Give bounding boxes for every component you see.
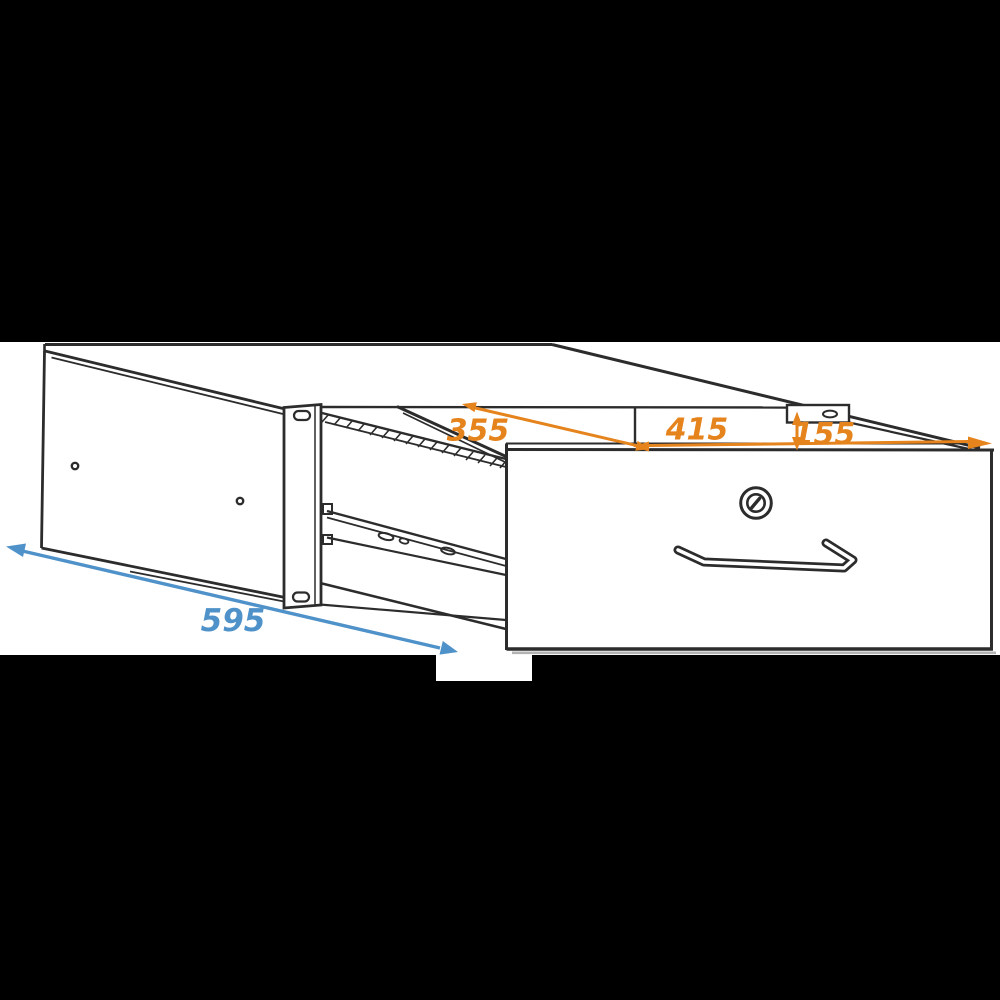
case-inner-top-edge [321,407,788,408]
rail-slot-hole [378,532,394,542]
ear-slot-top [294,411,310,420]
panel-top-edge [45,351,285,409]
dim-595-label: 595 [201,603,266,639]
dim-155-label: 155 [793,417,856,452]
rack-drawer-diagram: 355 415 155 595 [0,0,1000,1000]
rail-upper-inner [327,518,506,567]
panel-hole [237,498,243,504]
letterbox-top [0,0,1000,342]
panel-left-edge [42,351,45,548]
drawer-front-face [508,451,990,649]
rack-ear-left [284,405,321,609]
shadow-pocket [436,655,532,681]
panel-bottom-edge-inner [130,572,284,602]
panel-hole [72,463,78,469]
dim-595-arrowhead-right [440,641,459,655]
rail-clip [323,535,332,544]
rail-upper [327,511,506,559]
rail-lower [327,538,506,576]
dim-415-label: 415 [665,413,729,448]
panel-bottom-edge [42,548,286,598]
dimension-155: 155 [792,412,855,453]
letterbox-bottom [0,655,1000,1000]
diagram-canvas: 355 415 155 595 [0,0,1000,1000]
dim-595-arrowhead-left [6,544,26,558]
panel-top-edge-inner [52,358,286,415]
dim-355-label: 355 [447,414,510,449]
ear-slot-bottom [293,593,309,602]
case-top-right-edge [552,345,980,449]
drawer-top-front-edge [506,450,994,451]
